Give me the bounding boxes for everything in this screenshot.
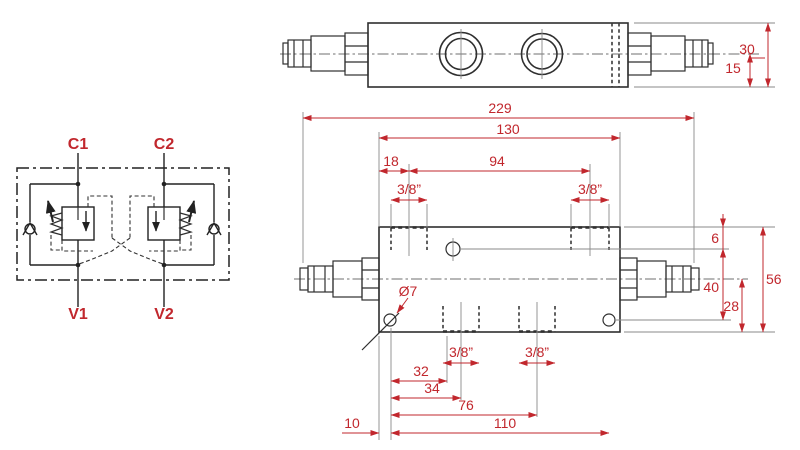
valve-stubs xyxy=(78,207,164,220)
junction-dots xyxy=(76,182,167,268)
top-view: 30 15 xyxy=(280,23,775,87)
front-view-right-dimensions: 6 40 28 56 xyxy=(703,214,781,332)
dim-18: 18 xyxy=(383,153,399,169)
right-relief-arrow-icon xyxy=(189,201,194,222)
dim-94: 94 xyxy=(489,153,505,169)
top-view-body xyxy=(368,23,628,87)
dim-56: 56 xyxy=(766,271,782,287)
dim-30: 30 xyxy=(739,41,755,57)
pilot-outboard xyxy=(51,235,191,250)
front-view-bottom-dimensions: 3/8” 3/8” 32 34 76 110 10 xyxy=(342,344,609,433)
drawing-canvas: C1 C2 V1 V2 xyxy=(0,0,800,450)
dim-34: 34 xyxy=(424,380,440,396)
valve-technical-drawing: C1 C2 V1 V2 xyxy=(0,0,800,450)
front-view: 229 130 18 94 3/8” 3/8” 6 40 28 56 xyxy=(294,100,782,440)
dim-thread-top-left: 3/8” xyxy=(397,181,421,197)
right-pilot-box xyxy=(130,196,154,238)
dim-40: 40 xyxy=(703,279,719,295)
dim-10: 10 xyxy=(344,415,360,431)
dim-thread-bottom-right: 3/8” xyxy=(525,344,549,360)
port-lines xyxy=(78,153,164,307)
dim-76: 76 xyxy=(458,397,474,413)
front-view-hole-callout: Ø7 xyxy=(397,283,418,313)
dim-thread-top-right: 3/8” xyxy=(578,181,602,197)
front-view-body xyxy=(379,227,620,332)
top-view-dimensions: 30 15 xyxy=(634,23,775,87)
port-label-v1: V1 xyxy=(68,306,88,323)
dim-28: 28 xyxy=(723,298,739,314)
front-view-top-dimensions: 229 130 18 94 3/8” 3/8” xyxy=(303,100,694,200)
front-view-extension-lines xyxy=(303,112,775,440)
left-pilot-box xyxy=(88,196,112,238)
dim-15: 15 xyxy=(725,60,741,76)
dim-hole-diameter: Ø7 xyxy=(399,283,418,299)
dim-229: 229 xyxy=(488,100,512,116)
dim-thread-bottom-left: 3/8” xyxy=(449,344,473,360)
dim-110: 110 xyxy=(494,415,517,431)
port-label-v2: V2 xyxy=(154,306,174,323)
port-label-c1: C1 xyxy=(68,136,89,153)
schematic-boundary xyxy=(17,168,229,280)
dim-6: 6 xyxy=(711,230,719,246)
left-relief-arrow-icon xyxy=(48,201,53,222)
hydraulic-schematic: C1 C2 V1 V2 xyxy=(17,136,229,323)
front-view-top-ports xyxy=(391,164,609,256)
top-view-hidden-lines xyxy=(612,23,619,87)
dim-32: 32 xyxy=(413,363,429,379)
dim-130: 130 xyxy=(496,121,520,137)
port-label-c2: C2 xyxy=(154,136,175,153)
